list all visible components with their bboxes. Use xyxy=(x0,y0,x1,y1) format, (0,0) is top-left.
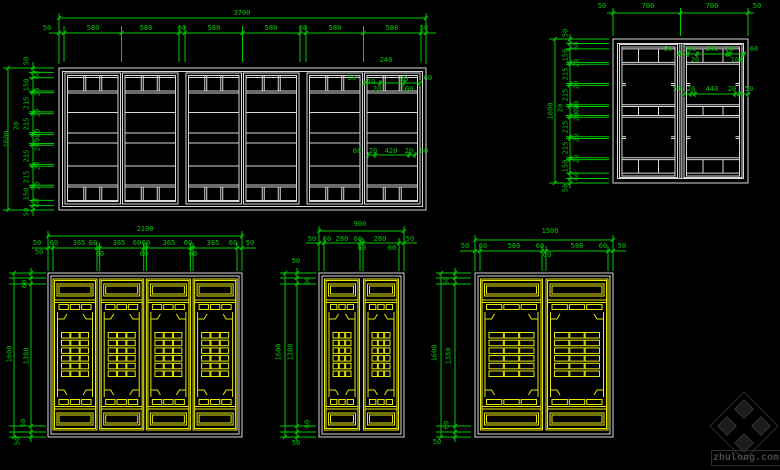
cad-canvas: 3700505805806058058060580580501600205060… xyxy=(0,0,780,470)
bottom-middle-lattice-door-elevation xyxy=(280,226,417,442)
cad-linework xyxy=(0,0,780,470)
bottom-left-lattice-door-elevation xyxy=(9,231,256,442)
top-left-window-elevation xyxy=(3,13,436,216)
top-right-window-elevation xyxy=(549,8,754,188)
bottom-right-lattice-door-elevation xyxy=(436,235,626,442)
watermark-text: zhulong.com xyxy=(711,450,780,466)
